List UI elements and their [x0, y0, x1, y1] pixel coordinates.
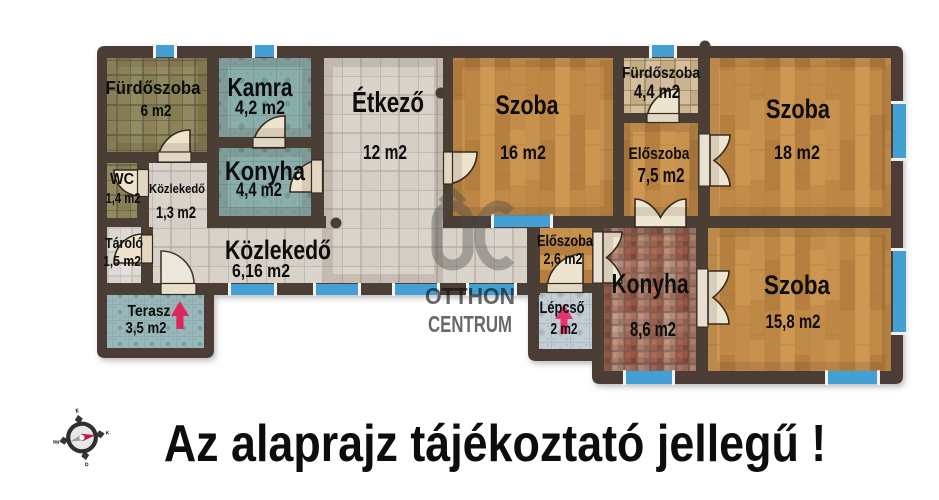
- svg-text:Szoba: Szoba: [764, 270, 831, 300]
- svg-text:Lépcső: Lépcső: [540, 298, 585, 317]
- svg-text:6,16 m2: 6,16 m2: [232, 261, 290, 281]
- svg-text:WC: WC: [110, 171, 134, 188]
- svg-text:É: É: [75, 406, 80, 415]
- svg-text:15,8 m2: 15,8 m2: [766, 312, 821, 333]
- svg-text:Fürdőszoba: Fürdőszoba: [106, 78, 202, 98]
- svg-text:16 m2: 16 m2: [500, 143, 546, 164]
- svg-text:7,5 m2: 7,5 m2: [638, 165, 685, 187]
- svg-text:3,5 m2: 3,5 m2: [126, 320, 167, 337]
- svg-text:K: K: [105, 430, 110, 437]
- svg-text:OTTHON: OTTHON: [425, 283, 515, 309]
- svg-text:Ny: Ny: [53, 439, 61, 446]
- svg-text:Az alaprajz tájékoztató jelleg: Az alaprajz tájékoztató jellegű !: [164, 415, 826, 473]
- svg-text:Szoba: Szoba: [766, 94, 831, 124]
- svg-text:Konyha: Konyha: [612, 268, 689, 299]
- svg-text:Terasz: Terasz: [128, 303, 171, 320]
- svg-text:1,4 m2: 1,4 m2: [106, 190, 141, 207]
- svg-text:4,2 m2: 4,2 m2: [235, 98, 285, 119]
- svg-text:Szoba: Szoba: [496, 90, 560, 120]
- svg-text:2 m2: 2 m2: [551, 321, 578, 338]
- svg-text:Közlekedő: Közlekedő: [149, 181, 205, 196]
- svg-text:18 m2: 18 m2: [774, 143, 820, 164]
- svg-text:1,5 m2: 1,5 m2: [103, 253, 141, 270]
- svg-text:2,6 m2: 2,6 m2: [544, 251, 583, 268]
- svg-text:CENTRUM: CENTRUM: [428, 311, 512, 337]
- svg-text:Tároló: Tároló: [105, 235, 143, 252]
- svg-text:Előszoba: Előszoba: [537, 233, 593, 250]
- svg-text:Fürdőszoba: Fürdőszoba: [622, 65, 700, 82]
- svg-text:12 m2: 12 m2: [363, 142, 407, 164]
- svg-text:8,6 m2: 8,6 m2: [630, 319, 676, 341]
- svg-text:1,3 m2: 1,3 m2: [156, 203, 196, 222]
- svg-text:Étkező: Étkező: [352, 85, 424, 119]
- svg-text:D: D: [85, 462, 90, 469]
- svg-text:4,4 m2: 4,4 m2: [634, 82, 680, 103]
- svg-text:6 m2: 6 m2: [141, 101, 172, 120]
- svg-text:4,4 m2: 4,4 m2: [236, 180, 282, 201]
- svg-text:Előszoba: Előszoba: [629, 144, 690, 163]
